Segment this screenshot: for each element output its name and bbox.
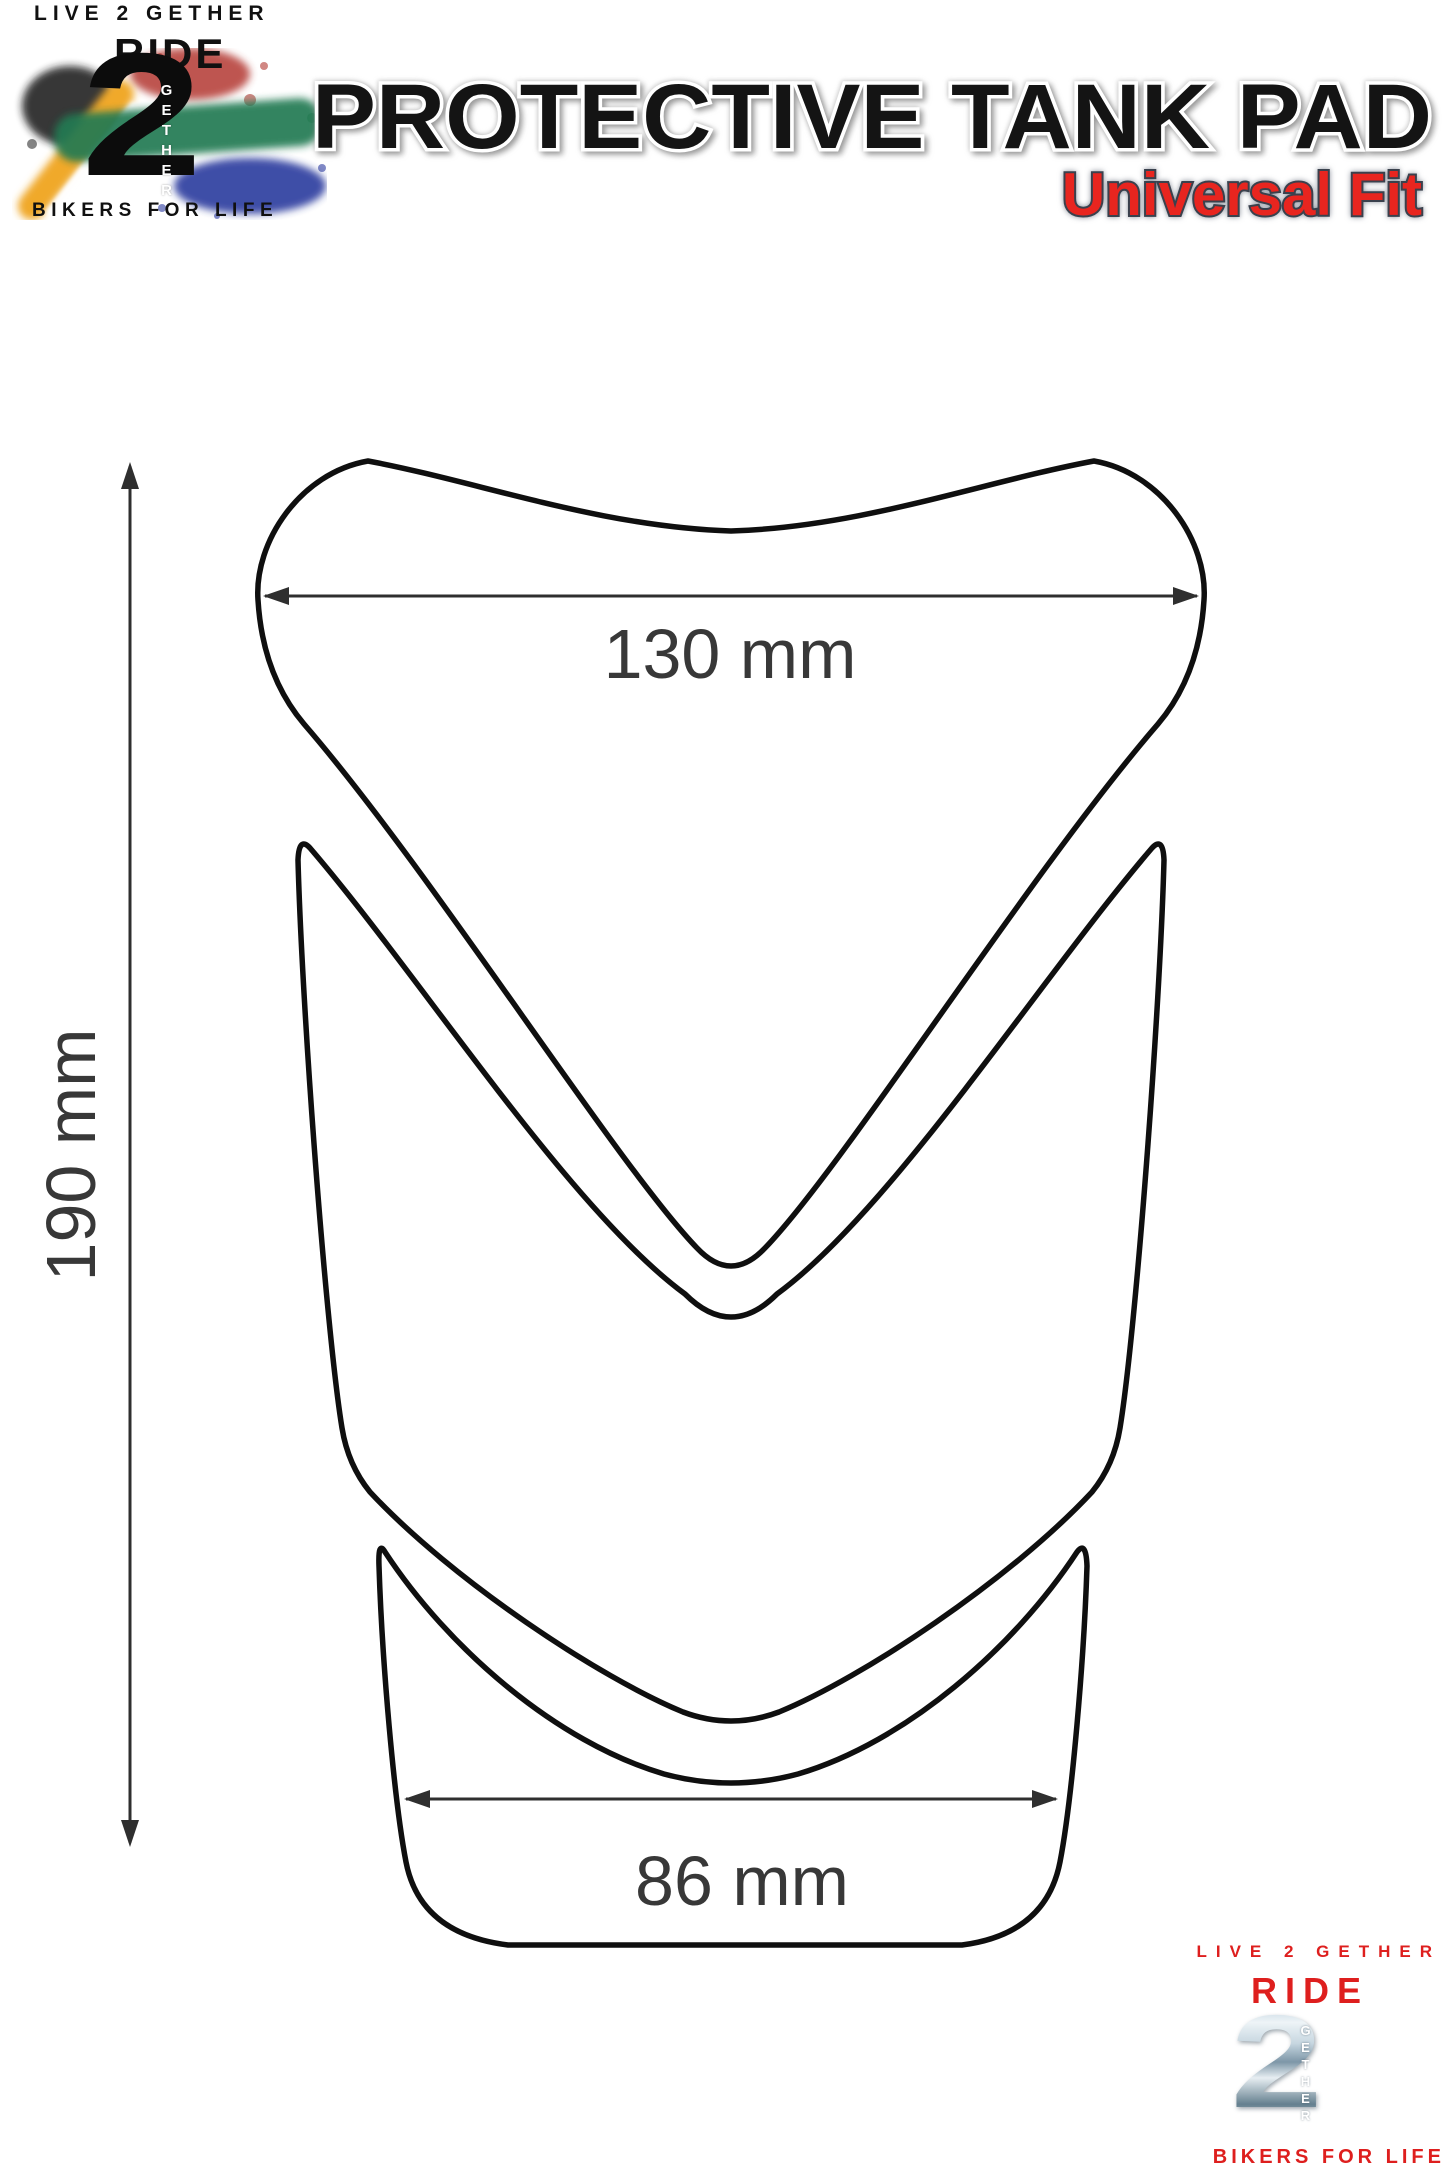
label-bottom-width: 86 mm [635,1842,849,1920]
tank-pad-technical-drawing: 130 mm 190 mm 86 mm [0,0,1445,2170]
page: LIVE 2 GETHER RIDE 2 GETHER BIKERS FOR L… [0,0,1445,2170]
brand-logo-bottom: LIVE 2 GETHER RIDE 2 GETHER BIKERS FOR L… [1150,1928,1445,2170]
brand-bottom-bikers-text: BIKERS FOR LIFE [1213,2146,1445,2169]
label-height: 190 mm [32,1029,110,1282]
brand-bottom-gether-vertical-text: GETHER [1298,2023,1313,2131]
brand-bottom-live2gether-text: LIVE 2 GETHER [1196,1942,1441,1962]
label-top-width: 130 mm [604,615,857,693]
